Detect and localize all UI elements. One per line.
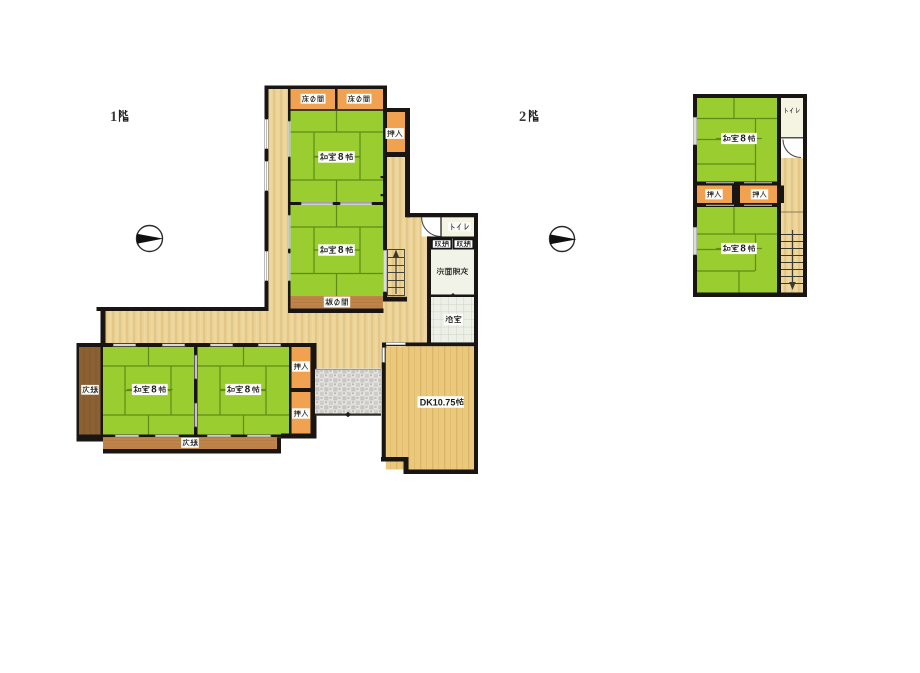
svg-text:8: 8	[338, 245, 344, 256]
svg-text:1: 1	[110, 109, 117, 125]
svg-text:8: 8	[151, 384, 157, 395]
svg-text:2: 2	[519, 109, 526, 125]
svg-text:8: 8	[740, 243, 746, 254]
svg-text:8: 8	[245, 384, 251, 395]
svg-text:DK10.75: DK10.75	[420, 397, 456, 407]
svg-text:8: 8	[338, 152, 344, 163]
svg-text:8: 8	[740, 133, 746, 144]
